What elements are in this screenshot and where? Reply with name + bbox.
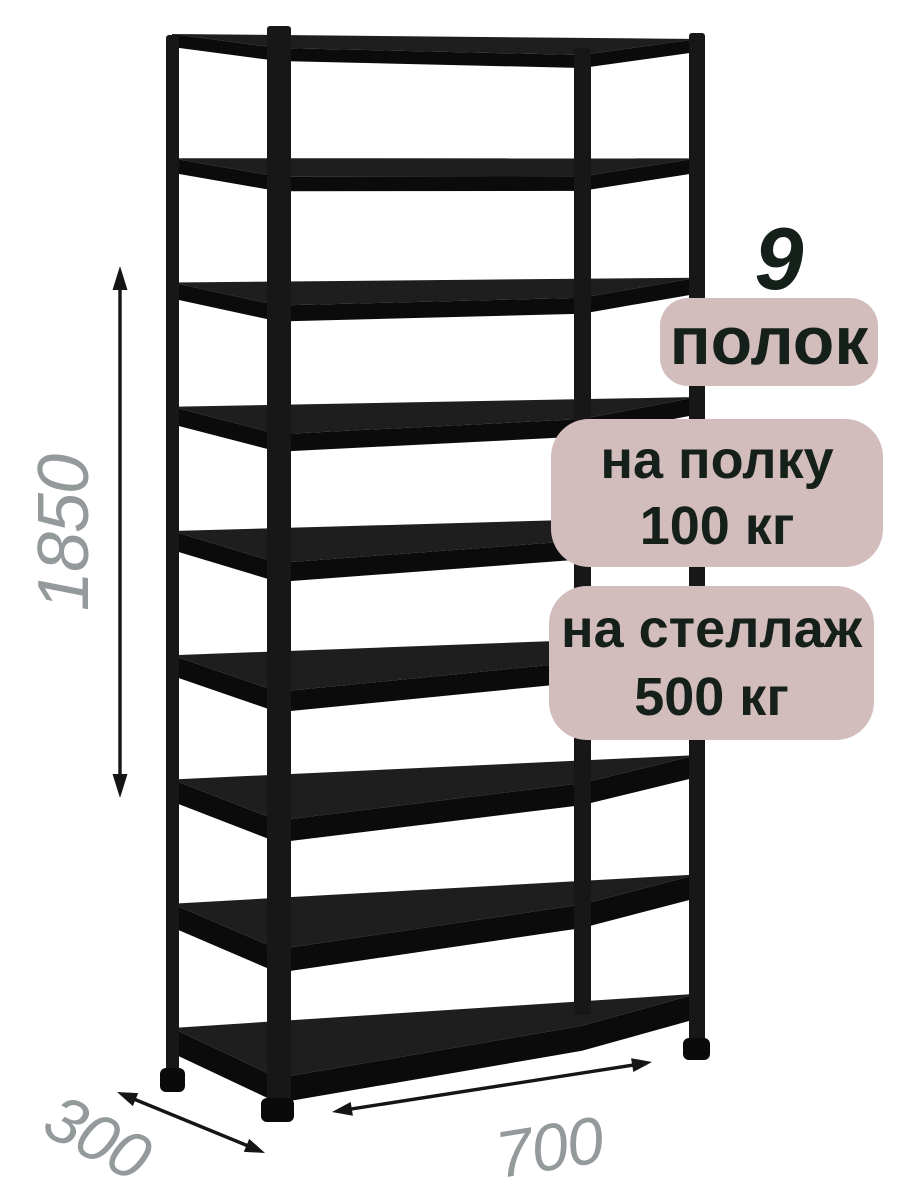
height-dimension: 1850	[24, 266, 128, 798]
height-dimension-label: 1850	[24, 454, 104, 611]
depth-arrow-head-left	[117, 1092, 138, 1106]
rack-foot	[683, 1038, 710, 1060]
rack-post	[166, 35, 179, 1078]
width-dimension-label: 700	[490, 1102, 609, 1192]
total-load-badge: на стеллаж 500 кг	[549, 586, 874, 740]
depth-arrow-head-right	[244, 1139, 265, 1153]
width-arrow-head-left	[332, 1102, 353, 1116]
total-load-line1: на стеллаж	[549, 595, 874, 663]
shelving-rack	[160, 26, 710, 1122]
width-arrow-head-right	[631, 1058, 652, 1072]
shelf-count-badge: полок	[660, 298, 878, 386]
per-shelf-load-line2: 100 кг	[551, 493, 883, 559]
shelf-count-badge-label: полок	[670, 303, 869, 379]
rack-foot	[261, 1098, 294, 1122]
rack-foot	[160, 1068, 185, 1092]
height-arrow-head-top	[113, 266, 128, 290]
per-shelf-load-badge: на полку 100 кг	[551, 419, 883, 567]
height-arrow-head-bottom	[113, 774, 128, 798]
depth-dimension-label: 300	[33, 1079, 163, 1195]
product-image: 1850 300 700 9 полок на полку 10	[0, 0, 900, 1200]
shelf-count-number: 9	[731, 213, 827, 305]
rack-post	[267, 26, 291, 1106]
per-shelf-load-line1: на полку	[551, 427, 883, 493]
depth-dimension: 300	[33, 1079, 265, 1195]
total-load-line2: 500 кг	[549, 663, 874, 731]
